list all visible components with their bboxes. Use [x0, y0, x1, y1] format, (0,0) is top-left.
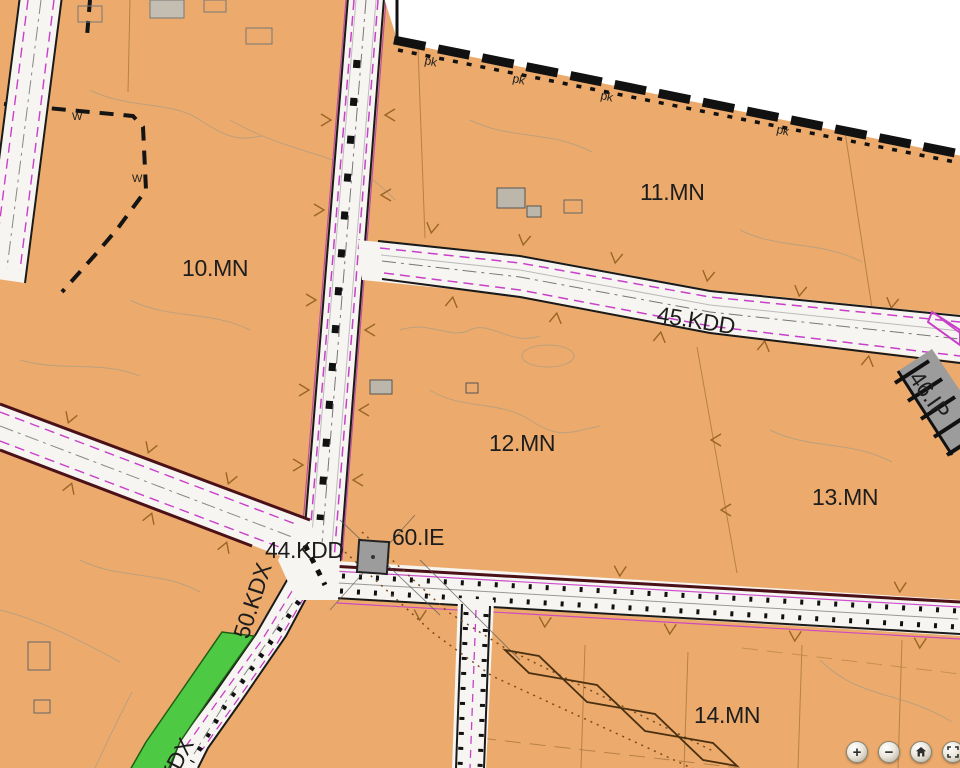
- zone-label-60ie: 60.IE: [392, 524, 444, 550]
- w-marker: W: [72, 111, 83, 123]
- map-controls: + −: [846, 741, 960, 763]
- home-button[interactable]: [910, 741, 932, 763]
- fullscreen-button[interactable]: [942, 741, 960, 763]
- zone-label-14mn: 14.MN: [694, 702, 760, 728]
- plus-icon: +: [853, 745, 862, 760]
- zone-label-10mn: 10.MN: [182, 255, 248, 281]
- zone-label-11mn: 11.MN: [640, 179, 705, 205]
- zoom-in-button[interactable]: +: [846, 741, 868, 763]
- zoning-map-canvas[interactable]: 10.MN 11.MN 12.MN 13.MN 14.MN 45.KDD 44.…: [0, 0, 960, 768]
- transformer-station-60ie: [357, 540, 389, 574]
- home-icon: [915, 746, 927, 758]
- minus-icon: −: [885, 745, 894, 760]
- zoom-out-button[interactable]: −: [878, 741, 900, 763]
- zone-label-13mn: 13.MN: [812, 484, 878, 510]
- w-marker: W: [132, 173, 143, 185]
- expand-icon: [947, 746, 959, 758]
- road-label-44kdd: 44.KDD: [265, 537, 344, 563]
- map-viewer: 10.MN 11.MN 12.MN 13.MN 14.MN 45.KDD 44.…: [0, 0, 960, 768]
- zone-label-12mn: 12.MN: [489, 430, 555, 456]
